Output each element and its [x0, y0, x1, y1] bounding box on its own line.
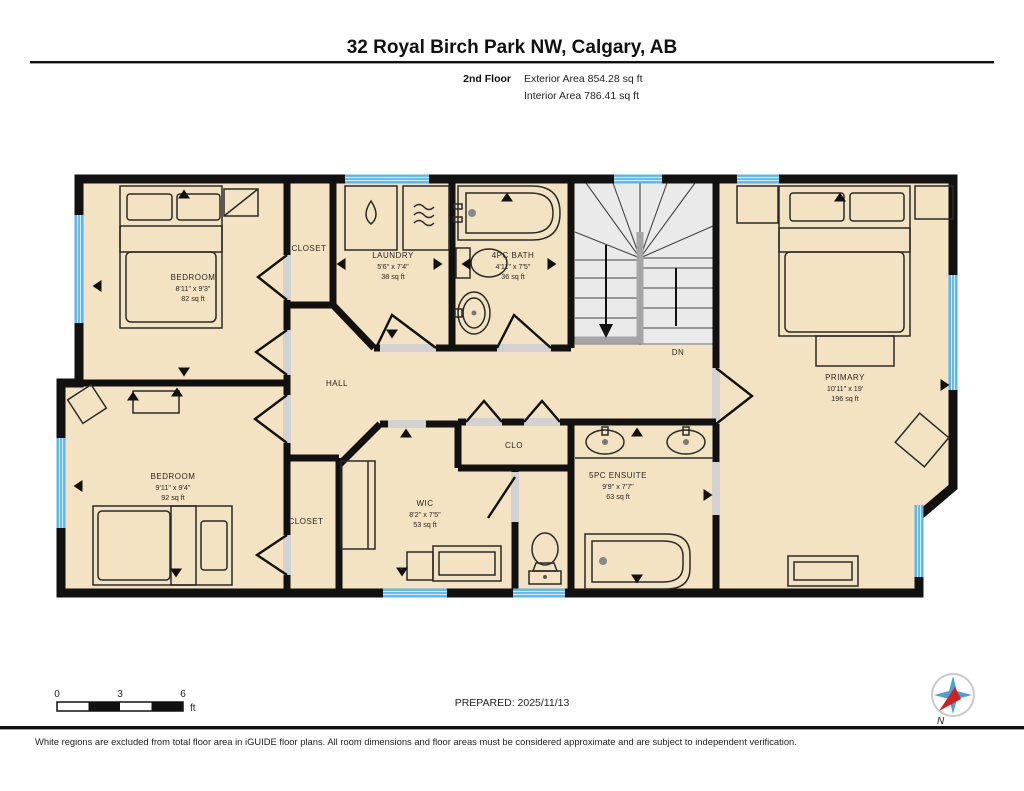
label-hall: HALL [326, 379, 348, 388]
room-dims: 8'11" x 9'3" [176, 284, 211, 293]
page-title: 32 Royal Birch Park NW, Calgary, AB [347, 37, 678, 58]
compass-n-label: N [937, 716, 945, 727]
room-area: 63 sq ft [606, 492, 630, 501]
scale-tick-6: 6 [180, 689, 186, 700]
room-name: PRIMARY [825, 373, 865, 382]
scale-bar-segment [89, 702, 121, 711]
room-area: 38 sq ft [381, 272, 405, 281]
room-name: BEDROOM [171, 273, 216, 282]
floor-label: 2nd Floor [463, 73, 511, 85]
room-dims: 5'6" x 7'4" [377, 262, 409, 271]
label-closet-tl: CLOSET [291, 244, 326, 253]
vanity-drain-right [683, 439, 689, 445]
floor-plan-page: 32 Royal Birch Park NW, Calgary, AB 2nd … [0, 0, 1024, 791]
wc-toilet-button [543, 575, 547, 579]
header: 32 Royal Birch Park NW, Calgary, AB 2nd … [30, 37, 994, 102]
room-dims: 8'2" x 7'5" [409, 510, 441, 519]
footer: 0 3 6 ft PREPARED: 2025/11/13 N White re… [0, 674, 1024, 747]
label-clo: CLO [505, 441, 523, 450]
compass: N [932, 674, 974, 727]
room-name: 4PC BATH [492, 251, 535, 260]
sink-drain [472, 311, 477, 316]
footer-divider [0, 726, 1024, 729]
interior-area: Interior Area 786.41 sq ft [524, 90, 639, 102]
room-name: WIC [416, 499, 433, 508]
prepared-date: PREPARED: 2025/11/13 [455, 697, 570, 709]
room-dims: 10'11" x 19' [827, 384, 864, 393]
scale-bar-segment [152, 702, 184, 711]
exterior-area: Exterior Area 854.28 sq ft [524, 73, 643, 85]
vanity-drain-left [602, 439, 608, 445]
stairs-fill [575, 183, 713, 345]
room-area: 196 sq ft [831, 394, 859, 403]
tub-faucet [468, 209, 476, 217]
ensuite-tub-faucet [599, 557, 607, 565]
floor-plan-svg: 32 Royal Birch Park NW, Calgary, AB 2nd … [0, 0, 1024, 791]
room-area: 53 sq ft [413, 520, 437, 529]
scale-bar: 0 3 6 ft [54, 689, 196, 714]
label-stairs-dn: DN [672, 348, 685, 357]
room-area: 36 sq ft [501, 272, 525, 281]
scale-unit: ft [190, 703, 196, 714]
label-closet-bl: CLOSET [288, 517, 323, 526]
header-divider [30, 61, 994, 63]
room-name: 5PC ENSUITE [589, 471, 647, 480]
room-dims: 9'9" x 7'7" [602, 482, 634, 491]
scale-tick-0: 0 [54, 689, 60, 700]
room-dims: 9'11" x 9'4" [156, 483, 191, 492]
room-area: 92 sq ft [161, 493, 185, 502]
room-name: LAUNDRY [372, 251, 414, 260]
room-name: BEDROOM [151, 472, 196, 481]
room-area: 82 sq ft [181, 294, 205, 303]
disclaimer-text: White regions are excluded from total fl… [35, 736, 797, 747]
scale-tick-3: 3 [117, 689, 123, 700]
room-dims: 4'11" x 7'5" [496, 262, 531, 271]
